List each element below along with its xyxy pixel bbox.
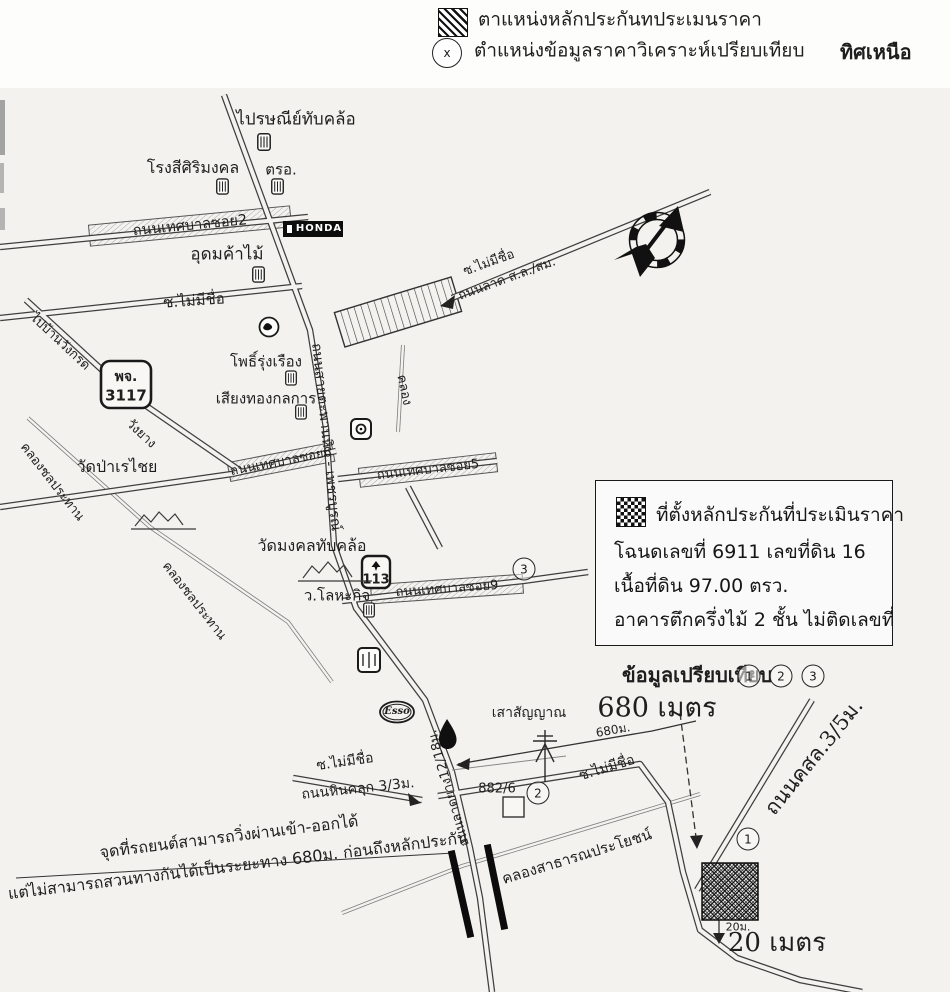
legend-subject-label: ตาแหน่งหลักประกันทประเมนราคา (478, 11, 762, 30)
comparison-marker-3: 3 (802, 665, 825, 688)
label-timber-shop: อุดมค้าไม้ (190, 247, 263, 264)
scan-smudge (0, 163, 4, 193)
scanned-survey-map-page: ตาแหน่งหลักประกันทประเมนราคา x ตำแหน่งข้… (0, 0, 950, 992)
north-direction-label: ทิศเหนือ (840, 42, 912, 62)
label-esso: Esso (384, 707, 410, 717)
pho-rungruang-building-icon (286, 371, 297, 385)
comparable-marker-1: 1 (737, 828, 760, 851)
info-box-deed-line: โฉนดเลขที่ 6911 เลขที่ดิน 16 (614, 537, 866, 567)
label-20-meters: 20 เมตร (728, 930, 826, 956)
subject-checker-icon (616, 497, 646, 527)
inspection-building-icon (272, 179, 284, 194)
label-inspection: ตรอ. (265, 163, 297, 178)
comparison-marker-1: 1 (738, 665, 761, 688)
label-signal-tower: เสาสัญญาณ (492, 706, 566, 720)
label-wat-mongkol: วัดมงคลทับคล้อ (257, 538, 366, 554)
subject-info-box: ที่ตั้งหลักประกันที่ประเมินราคา โฉนดเลขท… (595, 480, 893, 646)
lohakit-building-icon (364, 603, 375, 617)
legend-subject-hatch-icon (438, 8, 468, 37)
label-siangthong: เสียงทองกลการ (216, 392, 316, 407)
info-box-area-line: เนื้อที่ดิน 97.00 ตรว. (614, 571, 788, 601)
info-box-building-line: อาคารตึกครึ่งไม้ 2 ชั้น ไม่ติดเลขที่ (614, 605, 894, 635)
house-882-6-outline (503, 797, 524, 817)
comparable-marker-3: 3 (513, 558, 536, 581)
bank-bird-logo-icon (260, 318, 279, 337)
post-office-building-icon (258, 134, 270, 150)
label-sign-phj-number: 3117 (105, 389, 147, 404)
label-pho-rungruang: โพธิ์รุ่งเรือง (230, 355, 302, 370)
subject-property-hatched-box (702, 863, 758, 920)
info-box-title: ที่ตั้งหลักประกันที่ประเมินราคา (656, 500, 904, 530)
label-rice-mill: โรงสีศิริมงคล (147, 160, 239, 176)
timber-shop-building-icon (253, 267, 265, 282)
scan-smudge (0, 208, 5, 230)
label-honda: HONDA (296, 224, 342, 234)
bank-logo-icon (351, 419, 371, 439)
rice-mill-building-icon (217, 179, 229, 194)
label-680-meters: 680 เมตร (597, 695, 716, 722)
label-house-number: 882/6 (478, 783, 515, 796)
legend-comparable-label: ตำแหน่งข้อมูลราคาวิเคราะห์เปรียบเทียบ (474, 42, 805, 61)
comparison-marker-2: 2 (770, 665, 793, 688)
legend-comparable-circle-x-icon: x (432, 38, 462, 68)
label-sign-phj: พจ. (115, 370, 138, 384)
label-post-office: ไปรษณีย์ทับคล้อ (236, 112, 355, 129)
shop-logo-icon (358, 648, 380, 672)
label-lohakit: ว.โลหะกิจ (304, 589, 370, 604)
label-soi-noname-1: ซ.ไม่มีชื่อ (163, 291, 225, 310)
comparable-marker-2: 2 (527, 782, 550, 805)
label-highway-113: 113 (362, 574, 389, 587)
scan-smudge (0, 100, 5, 155)
circle-x-marker: x (443, 46, 450, 60)
label-wat-pa: วัดป่าเรไชย (77, 459, 158, 475)
